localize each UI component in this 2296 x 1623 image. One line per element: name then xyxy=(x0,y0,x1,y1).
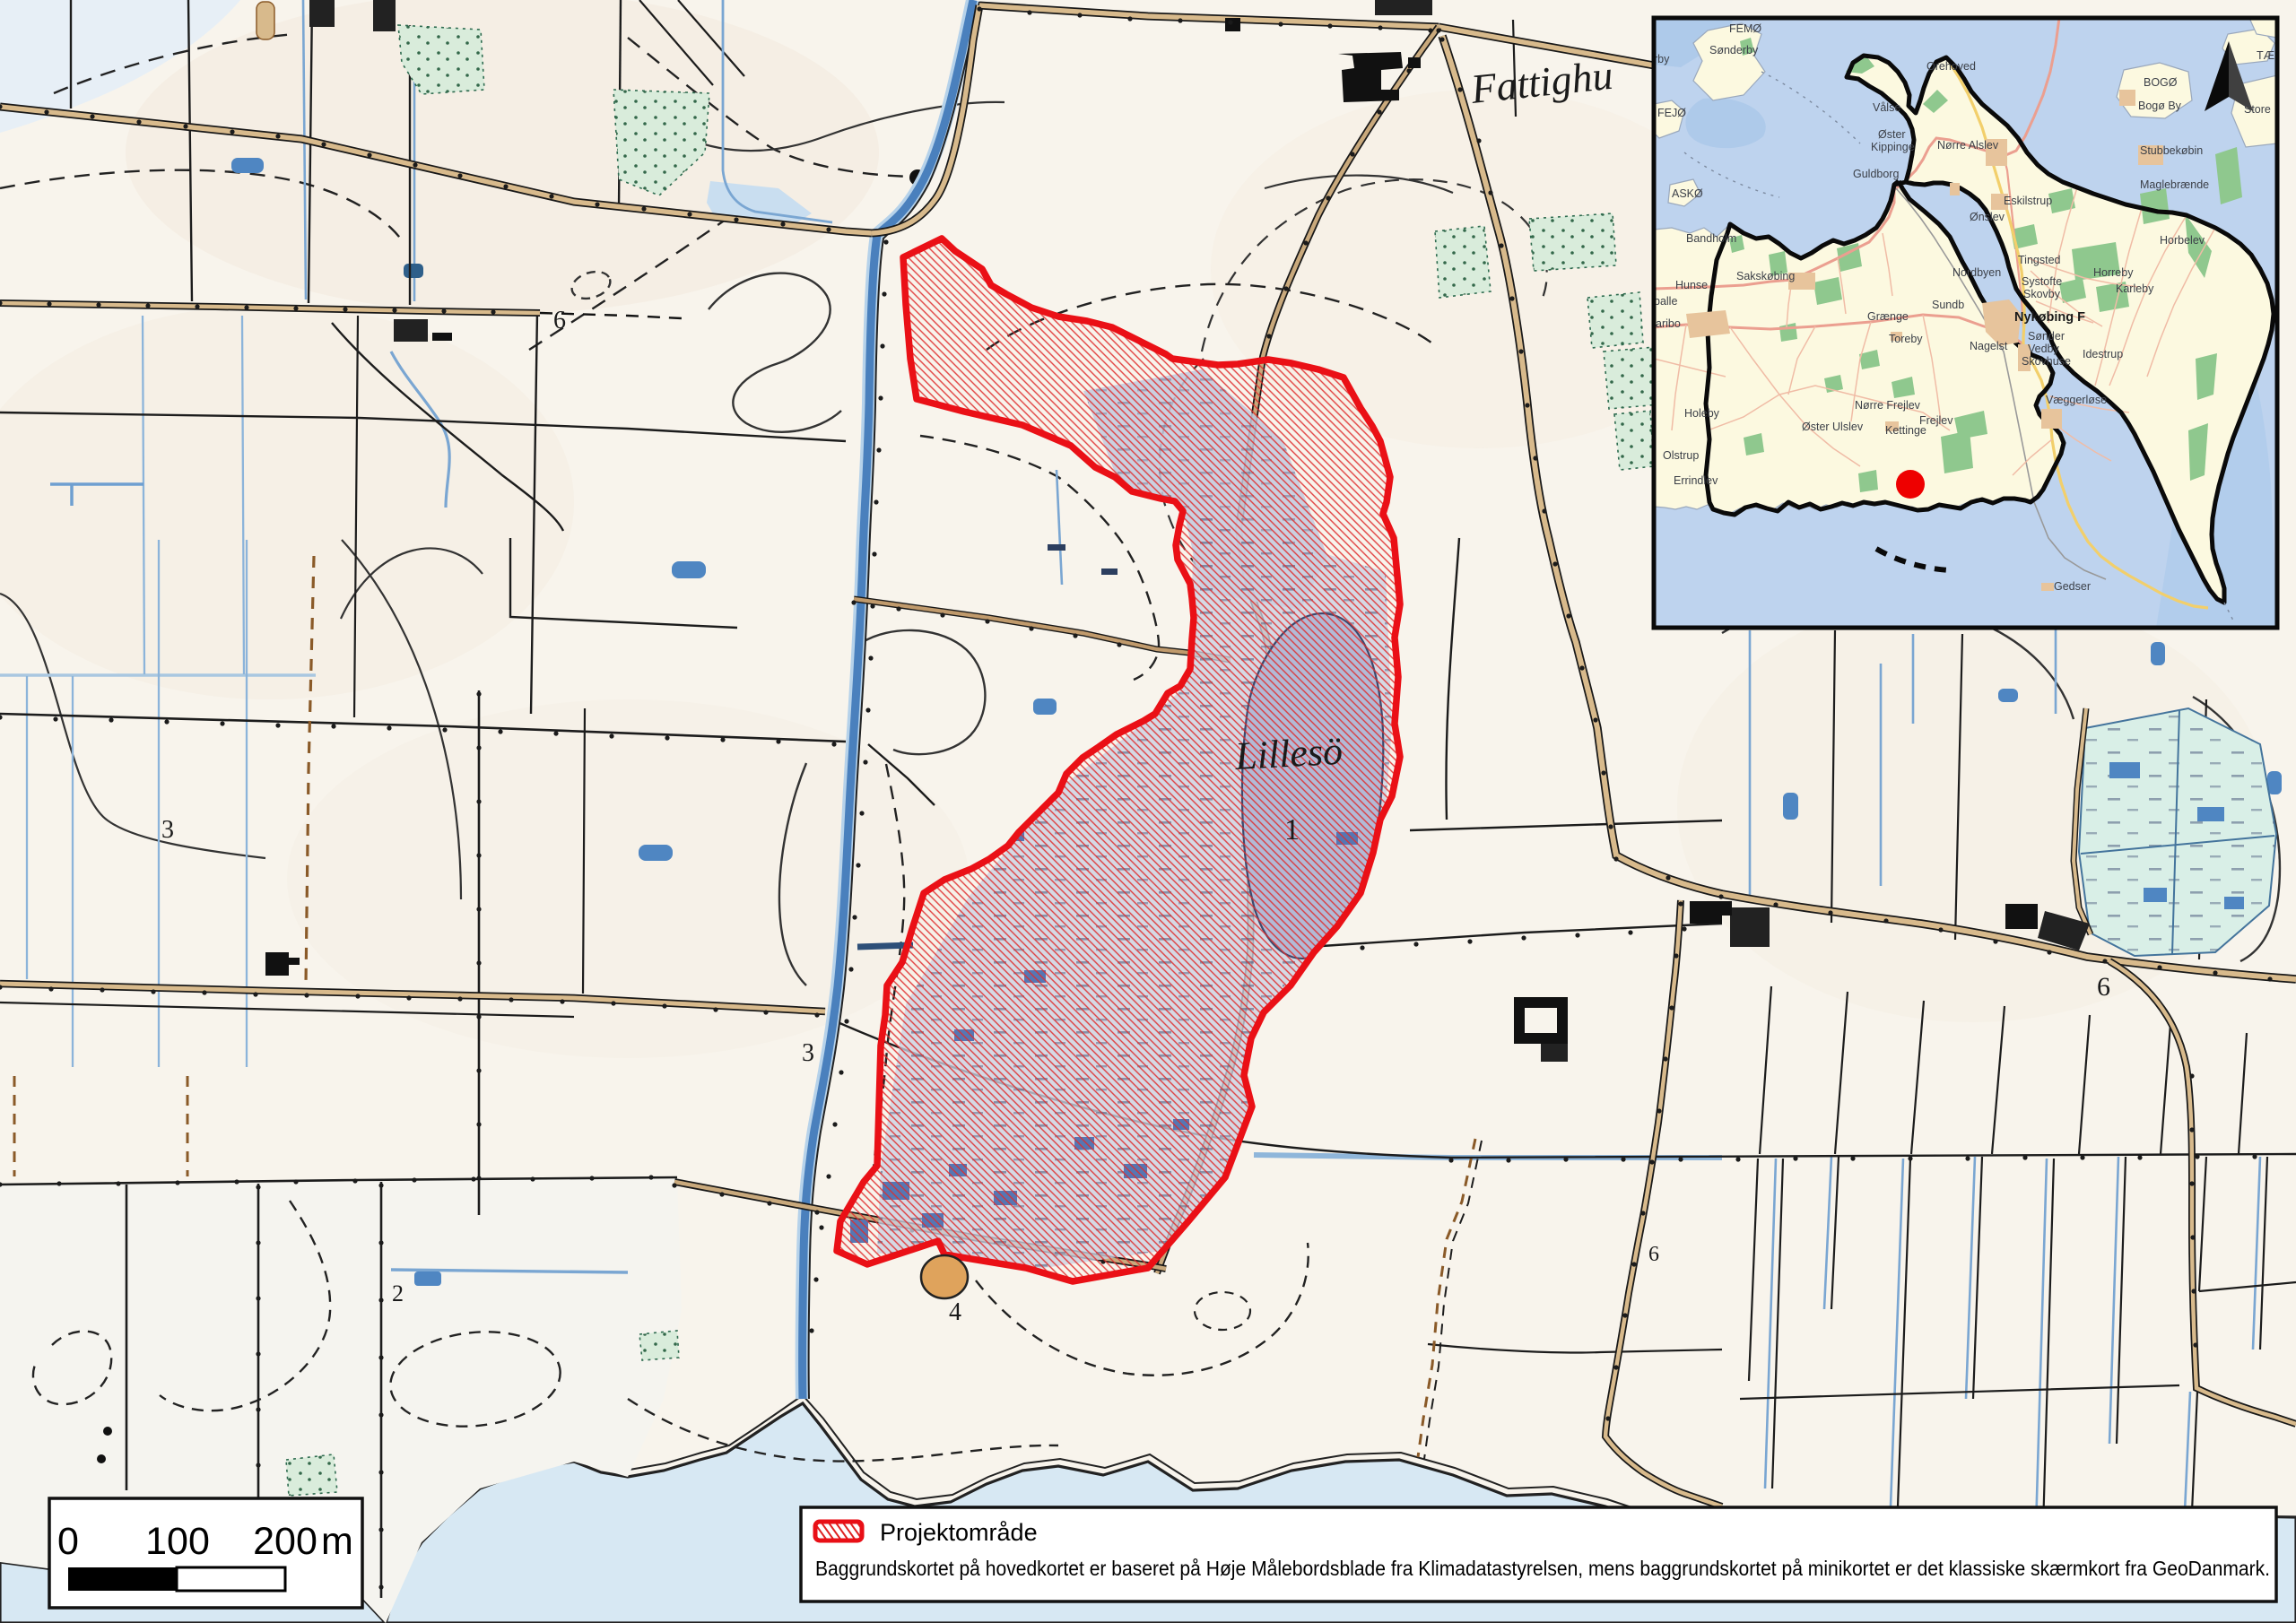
svg-text:Hunse: Hunse xyxy=(1675,279,1708,291)
svg-text:Horreby: Horreby xyxy=(2093,266,2134,279)
svg-text:3: 3 xyxy=(161,816,174,844)
svg-text:2: 2 xyxy=(392,1280,404,1306)
svg-text:Baggrundskortet på hovedkortet: Baggrundskortet på hovedkortet er basere… xyxy=(815,1557,2270,1580)
svg-text:0: 0 xyxy=(57,1520,79,1563)
svg-text:Store: Store xyxy=(2244,103,2271,116)
svg-text:Nordbyen: Nordbyen xyxy=(1952,266,2001,279)
svg-text:Øster: Øster xyxy=(1878,128,1906,141)
svg-text:200: 200 xyxy=(253,1520,317,1563)
svg-text:Øster Ulslev: Øster Ulslev xyxy=(1802,421,1864,433)
svg-text:Errindlev: Errindlev xyxy=(1674,474,1718,487)
svg-text:Væggerløse: Væggerløse xyxy=(2046,394,2107,406)
svg-text:100: 100 xyxy=(145,1520,210,1563)
svg-text:rby: rby xyxy=(1654,53,1670,65)
svg-text:Skovhuse: Skovhuse xyxy=(2022,355,2071,368)
svg-text:ASKØ: ASKØ xyxy=(1672,187,1703,200)
svg-text:Nørre Alslev: Nørre Alslev xyxy=(1937,139,1999,152)
svg-text:Stubbekøbin: Stubbekøbin xyxy=(2140,144,2203,157)
svg-text:Tingsted: Tingsted xyxy=(2018,254,2061,266)
svg-text:Skovby: Skovby xyxy=(2023,288,2061,300)
svg-text:m: m xyxy=(321,1520,353,1563)
svg-text:Eskilstrup: Eskilstrup xyxy=(2004,195,2052,207)
svg-text:BOGØ: BOGØ xyxy=(2144,76,2178,89)
svg-text:Frejlev: Frejlev xyxy=(1919,414,1953,427)
svg-text:Vedby: Vedby xyxy=(2028,343,2060,355)
svg-text:Maglebrænde: Maglebrænde xyxy=(2140,178,2209,191)
svg-text:Nagelst: Nagelst xyxy=(1970,340,2008,352)
svg-text:Holeby: Holeby xyxy=(1684,407,1720,420)
svg-text:Sakskøbing: Sakskøbing xyxy=(1736,270,1795,282)
svg-text:Orehoved: Orehoved xyxy=(1926,60,1976,73)
svg-text:Vålse: Vålse xyxy=(1873,101,1900,114)
svg-text:Horbelev: Horbelev xyxy=(2160,234,2205,247)
svg-text:Karleby: Karleby xyxy=(2116,282,2154,295)
svg-text:balle: balle xyxy=(1654,295,1677,308)
svg-text:Toreby: Toreby xyxy=(1889,333,1923,345)
svg-text:Olstrup: Olstrup xyxy=(1663,449,1699,462)
svg-text:4: 4 xyxy=(949,1298,961,1326)
svg-text:Gedser: Gedser xyxy=(2054,580,2091,593)
svg-text:FEJØ: FEJØ xyxy=(1657,107,1686,119)
svg-text:Sundb: Sundb xyxy=(1932,299,1964,311)
svg-text:Lillesö: Lillesö xyxy=(1233,729,1344,778)
svg-text:Sønder: Sønder xyxy=(2028,330,2065,343)
svg-text:Grænge: Grænge xyxy=(1867,310,1909,323)
svg-text:6: 6 xyxy=(1648,1243,1659,1266)
svg-text:Bandholm: Bandholm xyxy=(1686,232,1736,245)
svg-text:Sønderby: Sønderby xyxy=(1709,44,1759,56)
svg-text:Kippinge: Kippinge xyxy=(1871,141,1915,153)
svg-text:6: 6 xyxy=(2097,972,2110,1002)
svg-text:FEMØ: FEMØ xyxy=(1729,22,1761,35)
svg-text:Nykøbing F: Nykøbing F xyxy=(2014,310,2085,325)
svg-text:6: 6 xyxy=(553,307,566,334)
svg-text:Nørre Frejlev: Nørre Frejlev xyxy=(1855,399,1921,412)
svg-text:Bogø By: Bogø By xyxy=(2138,100,2182,112)
svg-text:Projektområde: Projektområde xyxy=(880,1519,1038,1546)
svg-text:Guldborg: Guldborg xyxy=(1853,168,1899,180)
svg-text:aribo: aribo xyxy=(1656,317,1681,330)
svg-text:3: 3 xyxy=(802,1039,814,1067)
svg-text:Idestrup: Idestrup xyxy=(2083,348,2123,360)
svg-text:Systofte: Systofte xyxy=(2022,275,2062,288)
svg-text:1: 1 xyxy=(1284,813,1300,846)
svg-text:Ønslev: Ønslev xyxy=(1970,211,2005,223)
